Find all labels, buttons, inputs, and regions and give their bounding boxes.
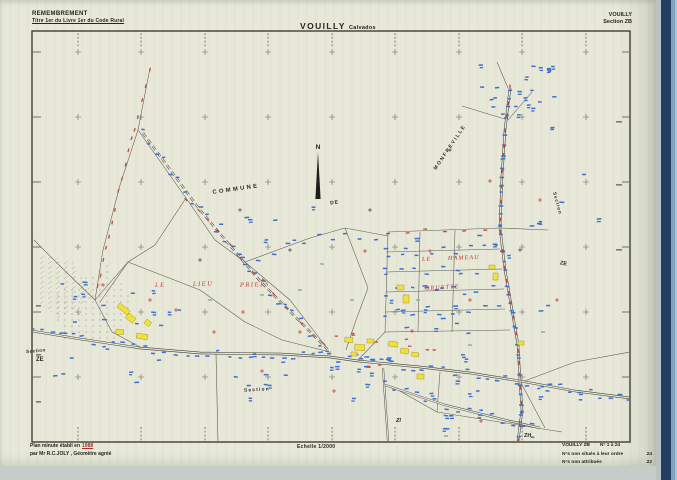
label-de: DE xyxy=(330,199,340,206)
north-arrow-label: N xyxy=(316,144,321,151)
map-frame xyxy=(32,31,630,442)
label-ze-left: ZE xyxy=(36,357,44,363)
sheet-summary-block: VOUILLY ZB N° 1 à 24 N°s non situés à le… xyxy=(562,442,662,468)
label-gruette: GRUETTE xyxy=(425,284,460,292)
parcel-number-ticks-blue xyxy=(30,64,631,438)
label-ze-right: ZE xyxy=(559,260,567,267)
label-lieudit-priels: PRIELS xyxy=(239,281,270,289)
label-lieudit-le: LE xyxy=(154,282,166,289)
label-section-left: Section xyxy=(26,347,46,354)
cadastral-map-canvas: N COMMUNE DE MONFREVILLE Section ZE Sect… xyxy=(0,0,677,480)
label-zh: ZH xyxy=(524,433,531,439)
summary-not-assigned-value: 22 xyxy=(647,459,652,468)
summary-sheet-ref: VOUILLY ZB xyxy=(562,442,590,451)
label-commune: COMMUNE xyxy=(212,183,260,196)
orchard-marsh-patterns xyxy=(36,254,132,342)
border-coordinate-marks xyxy=(36,121,622,403)
label-hameau-le: LE xyxy=(421,257,432,263)
label-lieudit-lieu: LIEU xyxy=(192,280,214,288)
building-footprints xyxy=(116,265,524,379)
north-arrow: N xyxy=(315,144,320,199)
summary-not-assigned-label: N°s non attribués xyxy=(562,459,602,468)
plan-minute-prefix: Plan minute établi en xyxy=(30,443,80,449)
plan-minute-year: 1988 xyxy=(82,443,93,449)
summary-not-located-label: N°s non situés à leur ordre xyxy=(562,451,623,460)
label-neighbor-commune: MONFREVILLE xyxy=(433,124,468,172)
label-hameau-word: HAMEAU xyxy=(447,255,480,262)
grid-marks xyxy=(33,33,629,441)
plan-minute-line: Plan minute établi en1988 xyxy=(30,443,93,449)
label-section-right: Section xyxy=(552,191,563,215)
label-section-bottom: Section xyxy=(244,386,270,393)
scale-label: Echelle 1/2000 xyxy=(297,444,335,450)
lieu-dit-labels: LE LIEU PRIELS LE HAMEAU GRUETTE xyxy=(154,255,480,292)
summary-not-located-value: 24 xyxy=(647,451,652,460)
scanned-cadastral-sheet: REMEMBREMENT Titre 1er du Livre 1er du C… xyxy=(0,0,677,480)
label-zi: ZI xyxy=(395,418,401,424)
survey-cross-marks xyxy=(101,148,559,423)
summary-number-range: N° 1 à 24 xyxy=(600,442,620,451)
surveyor-line: par Mr R.C.JOLY , Géomètre agréé xyxy=(30,451,111,457)
